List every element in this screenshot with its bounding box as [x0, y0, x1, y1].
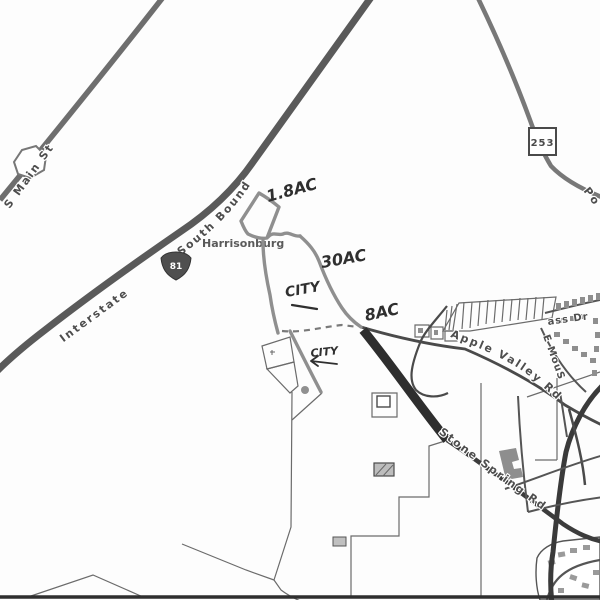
- annotation-acreage-lower: 8AC: [363, 299, 401, 325]
- subdivision-southeast: [536, 537, 600, 600]
- parcel-line: [262, 337, 294, 369]
- parcel-line: [292, 393, 322, 420]
- survey-mark: [270, 350, 275, 355]
- parcel-line: [28, 575, 143, 597]
- dashed-boundary-line: [282, 325, 358, 331]
- road-ramp-curve: [411, 306, 448, 396]
- interstate-81-number: 81: [170, 262, 183, 272]
- parcel-line: [351, 441, 445, 597]
- building: [333, 537, 346, 546]
- road-stone-spring-upper: [363, 330, 447, 440]
- road-route-253: [477, 0, 600, 198]
- annotation-acreage-upper: 1.8AC: [264, 174, 319, 206]
- road-label-e-mous: E MouS: [540, 333, 567, 381]
- buildings: [270, 328, 523, 546]
- strip-parcels: [443, 297, 556, 331]
- parcel-outline-pencil-west: [263, 241, 278, 333]
- route-253-number: 253: [531, 138, 555, 149]
- building: [377, 396, 390, 407]
- parcel-line: [267, 362, 298, 393]
- pond-dot: [301, 386, 309, 394]
- route-253-shield-icon: 253: [529, 128, 556, 155]
- scanned-parcel-map: 253 S Main St Interstate South Bound 81 …: [0, 0, 600, 600]
- annotation-city-upper: CITY: [284, 279, 323, 301]
- map-canvas[interactable]: 253 S Main St Interstate South Bound 81 …: [0, 0, 600, 600]
- building: [374, 463, 394, 476]
- parcel-line: [182, 544, 274, 580]
- city-name-label: Harrisonburg: [202, 237, 284, 250]
- road-label-stone-spring: Stone Spring Rd: [437, 425, 550, 513]
- building: [434, 330, 438, 335]
- building: [418, 328, 423, 333]
- interstate-81-shield-icon: 81: [161, 252, 191, 280]
- annotation-acreage-middle: 30AC: [319, 245, 368, 272]
- parcel-line: [274, 392, 309, 600]
- city-upper-underline: [292, 305, 317, 309]
